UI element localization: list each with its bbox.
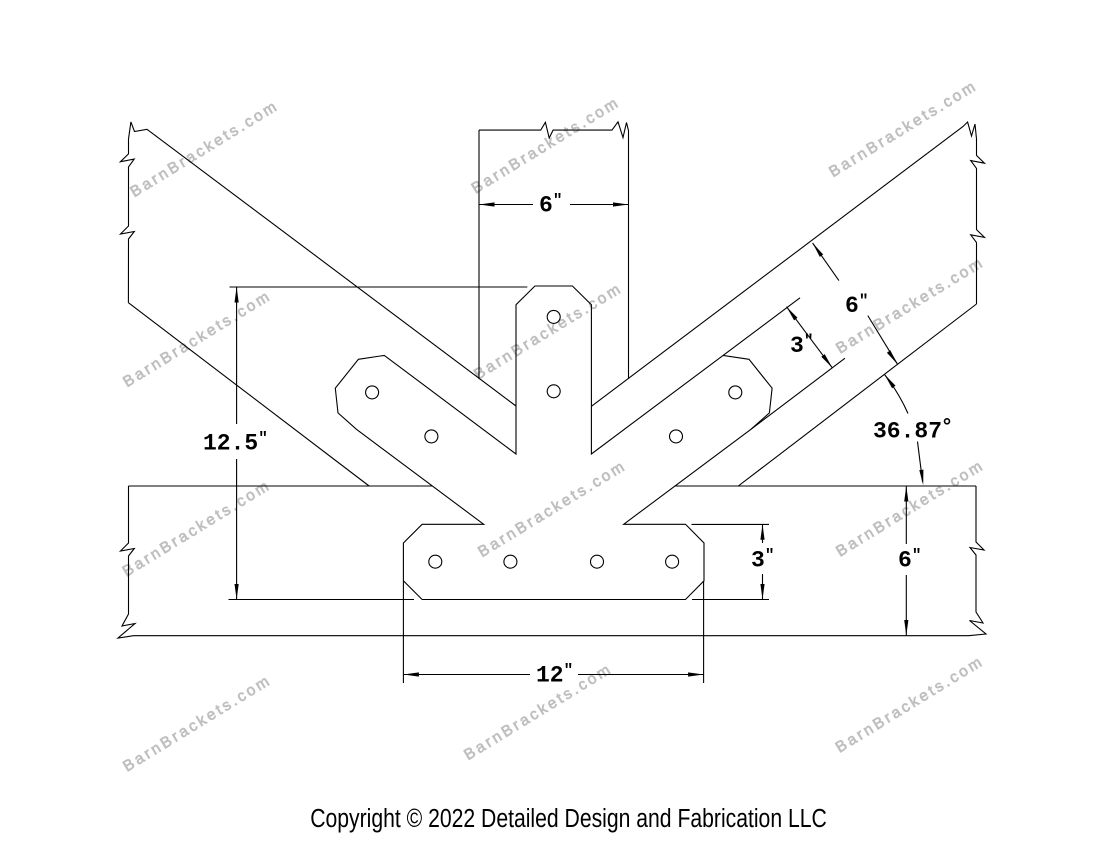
svg-text:12.5″: 12.5″	[203, 430, 268, 457]
svg-text:36.87: 36.87	[873, 419, 942, 445]
svg-text:Copyright © 2022 Detailed Desi: Copyright © 2022 Detailed Design and Fab…	[310, 804, 827, 832]
